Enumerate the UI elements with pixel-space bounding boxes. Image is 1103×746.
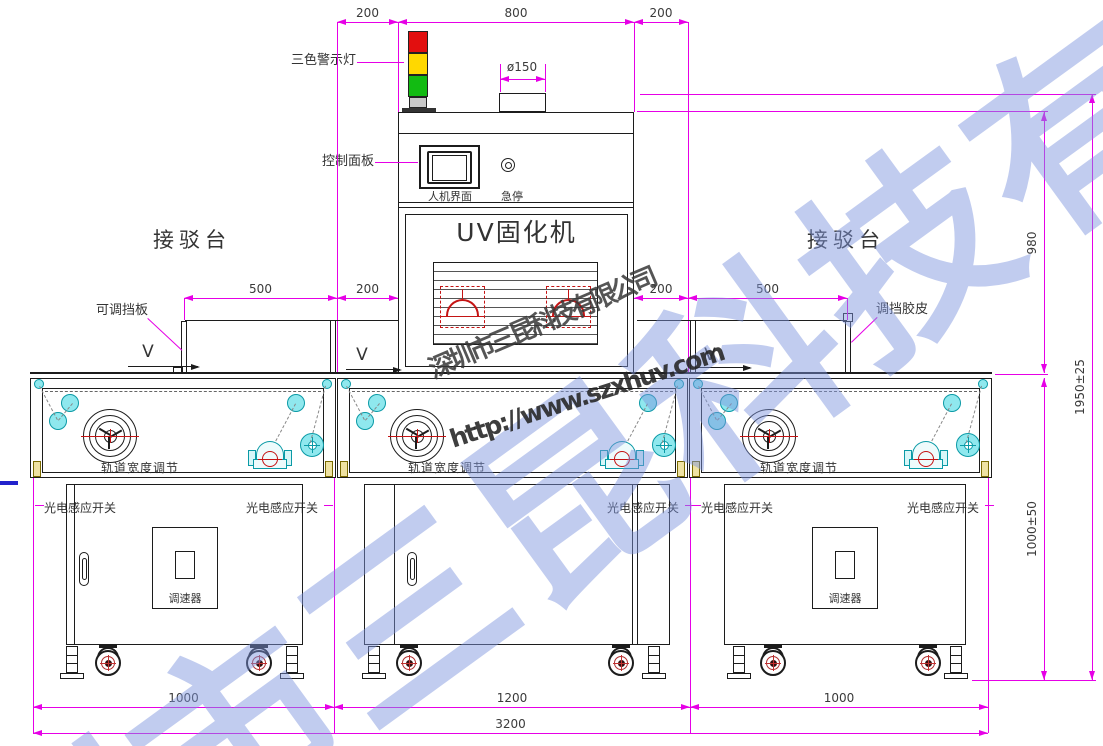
warning-light-yellow (408, 53, 428, 75)
line (286, 663, 298, 664)
dim-arrow (681, 704, 690, 710)
line (637, 111, 1048, 112)
dim-arrow (536, 76, 545, 82)
line (634, 22, 635, 112)
line (648, 663, 660, 664)
line (286, 655, 298, 656)
door-handle-slot (410, 558, 415, 580)
roller-icon (356, 412, 374, 430)
line (968, 437, 969, 453)
exhaust-duct (499, 93, 546, 112)
leveling-foot-icon (733, 646, 745, 673)
line (462, 289, 463, 299)
belt-tension-block (692, 461, 700, 477)
line (417, 429, 418, 443)
line (995, 374, 1048, 375)
dim-label: 3200 (477, 717, 545, 731)
leveling-foot-icon (286, 646, 298, 673)
roller-icon (639, 394, 657, 412)
dim-arrow (1089, 671, 1095, 680)
line (375, 162, 418, 163)
line (33, 478, 34, 733)
hmi-screen-glass (432, 155, 467, 181)
estop-button-icon (505, 162, 512, 169)
speed-controller-label: 调速器 (812, 590, 878, 606)
speed-controller-label: 调速器 (152, 590, 218, 606)
dim-arrow (1041, 112, 1047, 121)
docking-table-left-label: 接驳台 (146, 228, 238, 252)
line (985, 505, 994, 506)
direction-v-left: V (138, 343, 158, 363)
dim-arrow (191, 364, 200, 370)
leveling-foot-icon (648, 646, 660, 673)
dim-label: 1000 (150, 691, 218, 705)
belt-tension-block (33, 461, 41, 477)
speed-controller-window (175, 551, 195, 579)
roller-icon (49, 412, 67, 430)
dim-label: 500 (227, 282, 295, 296)
dim-arrow (743, 365, 752, 371)
track-width-label: 轨道宽度调节 (729, 459, 869, 476)
line (610, 459, 634, 460)
duct-diameter-label: ø150 (492, 61, 552, 75)
line (1044, 378, 1045, 680)
roller-icon (61, 394, 79, 412)
foot-plate (362, 673, 386, 679)
line (45, 391, 321, 392)
line (330, 321, 331, 373)
foot-plate (944, 673, 968, 679)
warning-tower-base (409, 97, 427, 108)
line (690, 478, 691, 733)
roller-icon (720, 394, 738, 412)
dim-arrow (688, 295, 697, 301)
dim-label: 200 (334, 282, 402, 296)
dim-arrow (690, 704, 699, 710)
dim-arrow (184, 295, 193, 301)
line (704, 391, 977, 392)
line (409, 655, 410, 671)
line (648, 655, 660, 656)
docking-table-right-label: 接驳台 (800, 228, 892, 252)
line (30, 372, 992, 374)
dim-arrow (979, 704, 988, 710)
line (914, 459, 938, 460)
line (128, 366, 198, 367)
dim-arrow (334, 704, 343, 710)
foot-plate (727, 673, 751, 679)
line (640, 94, 1096, 95)
line (33, 707, 334, 708)
line (733, 655, 745, 656)
roller-icon (368, 394, 386, 412)
line (688, 298, 847, 299)
belt-tension-block (325, 461, 333, 477)
line (632, 484, 633, 645)
dim-arrow (1041, 671, 1047, 680)
line (398, 22, 399, 112)
line (368, 655, 380, 656)
dim-arrow (500, 76, 509, 82)
line (637, 484, 638, 645)
baffle-rubber-label: 调挡胶皮 (876, 303, 942, 318)
line (664, 437, 665, 453)
line (185, 320, 398, 321)
dim-arrow (1089, 94, 1095, 103)
line (773, 655, 774, 671)
line (398, 22, 634, 23)
line (690, 707, 988, 708)
line (847, 298, 848, 320)
left-margin-mark (0, 481, 18, 485)
dim-label: 1200 (478, 691, 546, 705)
leveling-foot-icon (950, 646, 962, 673)
leveling-foot-icon (66, 646, 78, 673)
line (259, 655, 260, 671)
speed-controller-window (835, 551, 855, 579)
foot-plate (60, 673, 84, 679)
dim-label: 800 (482, 6, 550, 20)
baffle-rubber-cap (843, 313, 853, 322)
line (394, 484, 395, 645)
line (988, 478, 989, 733)
dim-arrow (838, 295, 847, 301)
line (357, 62, 404, 63)
line (334, 707, 690, 708)
line (972, 680, 1096, 681)
warning-light-label: 三色警示灯 (284, 54, 356, 69)
dim-label: 200 (627, 6, 695, 20)
line (334, 478, 335, 733)
track-width-label: 轨道宽度调节 (377, 459, 517, 476)
track-width-label: 轨道宽度调节 (70, 459, 210, 476)
line (545, 64, 546, 92)
baffle-wall-right (845, 321, 851, 373)
roller-icon (708, 412, 726, 430)
line (928, 655, 929, 671)
line (398, 133, 634, 134)
belt-tension-block (340, 461, 348, 477)
foot-plate (280, 673, 304, 679)
line (637, 320, 847, 321)
line (74, 484, 75, 645)
adjustable-baffle-label: 可调挡板 (84, 304, 148, 319)
line (398, 202, 634, 203)
line (184, 298, 185, 320)
line (851, 317, 878, 343)
dim-arrow (979, 730, 988, 736)
dim-label: 200 (334, 6, 402, 20)
line (1044, 112, 1045, 373)
dim-arrow (325, 704, 334, 710)
dim-arrow (33, 704, 42, 710)
line (346, 369, 400, 370)
line (950, 663, 962, 664)
line (35, 505, 44, 506)
dim-label: 1950±25 (1073, 342, 1087, 432)
leveling-foot-icon (368, 646, 380, 673)
warning-light-red (408, 31, 428, 53)
line (324, 505, 333, 506)
dim-arrow (398, 19, 407, 25)
dim-arrow (1041, 364, 1047, 373)
line (335, 321, 336, 373)
line (312, 437, 313, 453)
warning-light-green (408, 75, 428, 97)
roller-icon (287, 394, 305, 412)
line (950, 655, 962, 656)
line (769, 429, 770, 443)
line (621, 655, 622, 671)
line (441, 316, 484, 317)
door-handle-slot (82, 558, 87, 580)
line (398, 207, 634, 208)
line (692, 505, 701, 506)
belt-tension-block (677, 461, 685, 477)
line (66, 663, 78, 664)
line (258, 459, 282, 460)
dim-label: 1000 (805, 691, 873, 705)
line (110, 429, 111, 443)
line (108, 655, 109, 671)
foot-plate (642, 673, 666, 679)
line (1092, 94, 1093, 680)
dim-label: 980 (1025, 198, 1039, 288)
dim-label: 500 (734, 282, 802, 296)
line (733, 663, 745, 664)
line (184, 298, 337, 299)
roller-icon (943, 394, 961, 412)
uv-curing-machine-drawing: 三色警示灯 控制面板 人机界面 急停 UV固化机 接驳台 接驳台 可调挡板 调挡… (0, 0, 1103, 746)
dim-arrow (1041, 378, 1047, 387)
control-panel-label: 控制面板 (314, 155, 374, 170)
dim-arrow (33, 730, 42, 736)
line (66, 655, 78, 656)
direction-v-middle: V (352, 346, 372, 366)
belt-tension-block (981, 461, 989, 477)
dim-label: 1000±50 (1025, 484, 1039, 574)
line (33, 733, 988, 734)
line (368, 663, 380, 664)
